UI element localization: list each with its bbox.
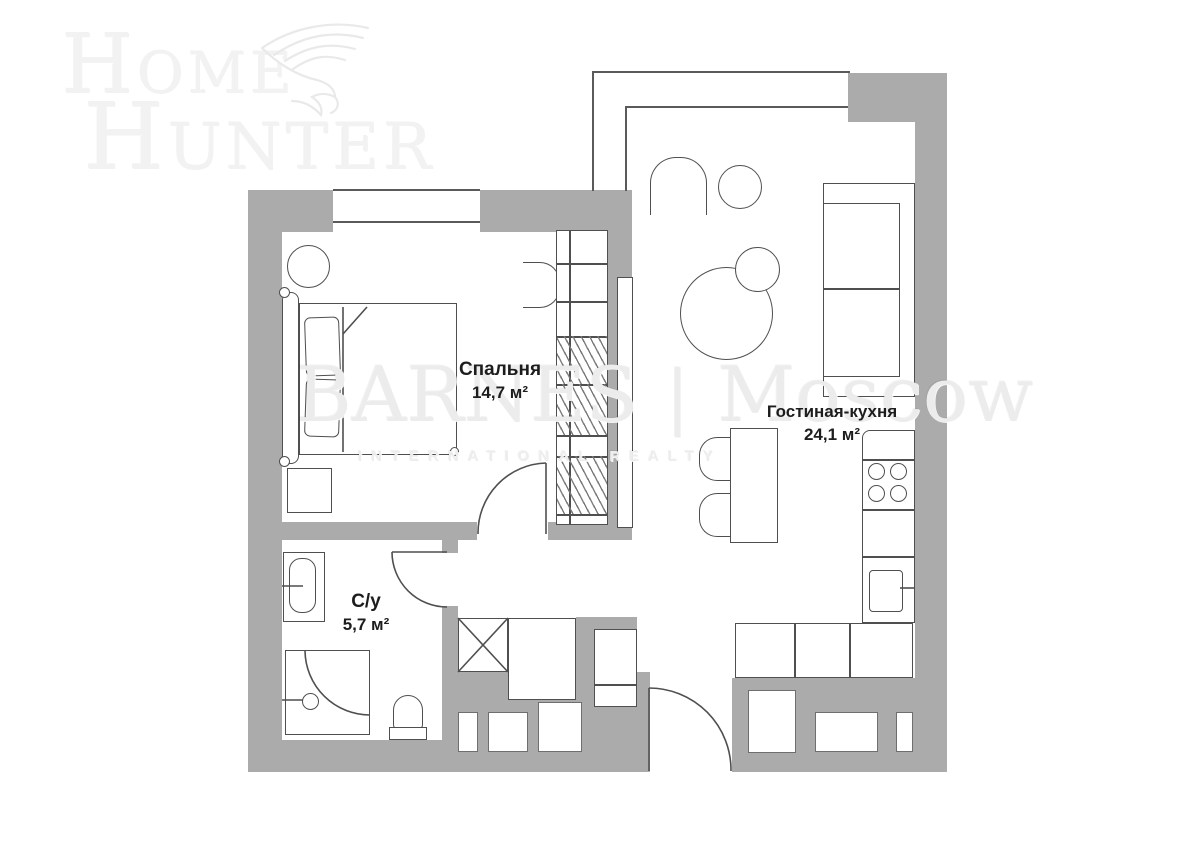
room-area: 14,7 м²: [420, 381, 580, 404]
room-label-bathroom: С/у 5,7 м²: [316, 590, 416, 636]
room-area: 24,1 м²: [752, 423, 912, 446]
shower-door: [305, 651, 370, 715]
room-name: Спальня: [420, 358, 580, 381]
bedroom-door: [478, 463, 546, 534]
duvet-fold-lines: [343, 307, 367, 452]
room-label-living-kitchen: Гостиная-кухня 24,1 м²: [752, 400, 912, 446]
room-name: С/у: [316, 590, 416, 613]
plan-annotations: [0, 0, 1200, 848]
entrance-door: [649, 688, 731, 771]
washing-machine-cross: [458, 618, 508, 672]
room-label-bedroom: Спальня 14,7 м²: [420, 358, 580, 404]
room-area: 5,7 м²: [316, 613, 416, 636]
room-name: Гостиная-кухня: [752, 400, 912, 423]
floor-plan-canvas: Home Hunter BARNES | Moscow INTERNATIONA…: [0, 0, 1200, 848]
